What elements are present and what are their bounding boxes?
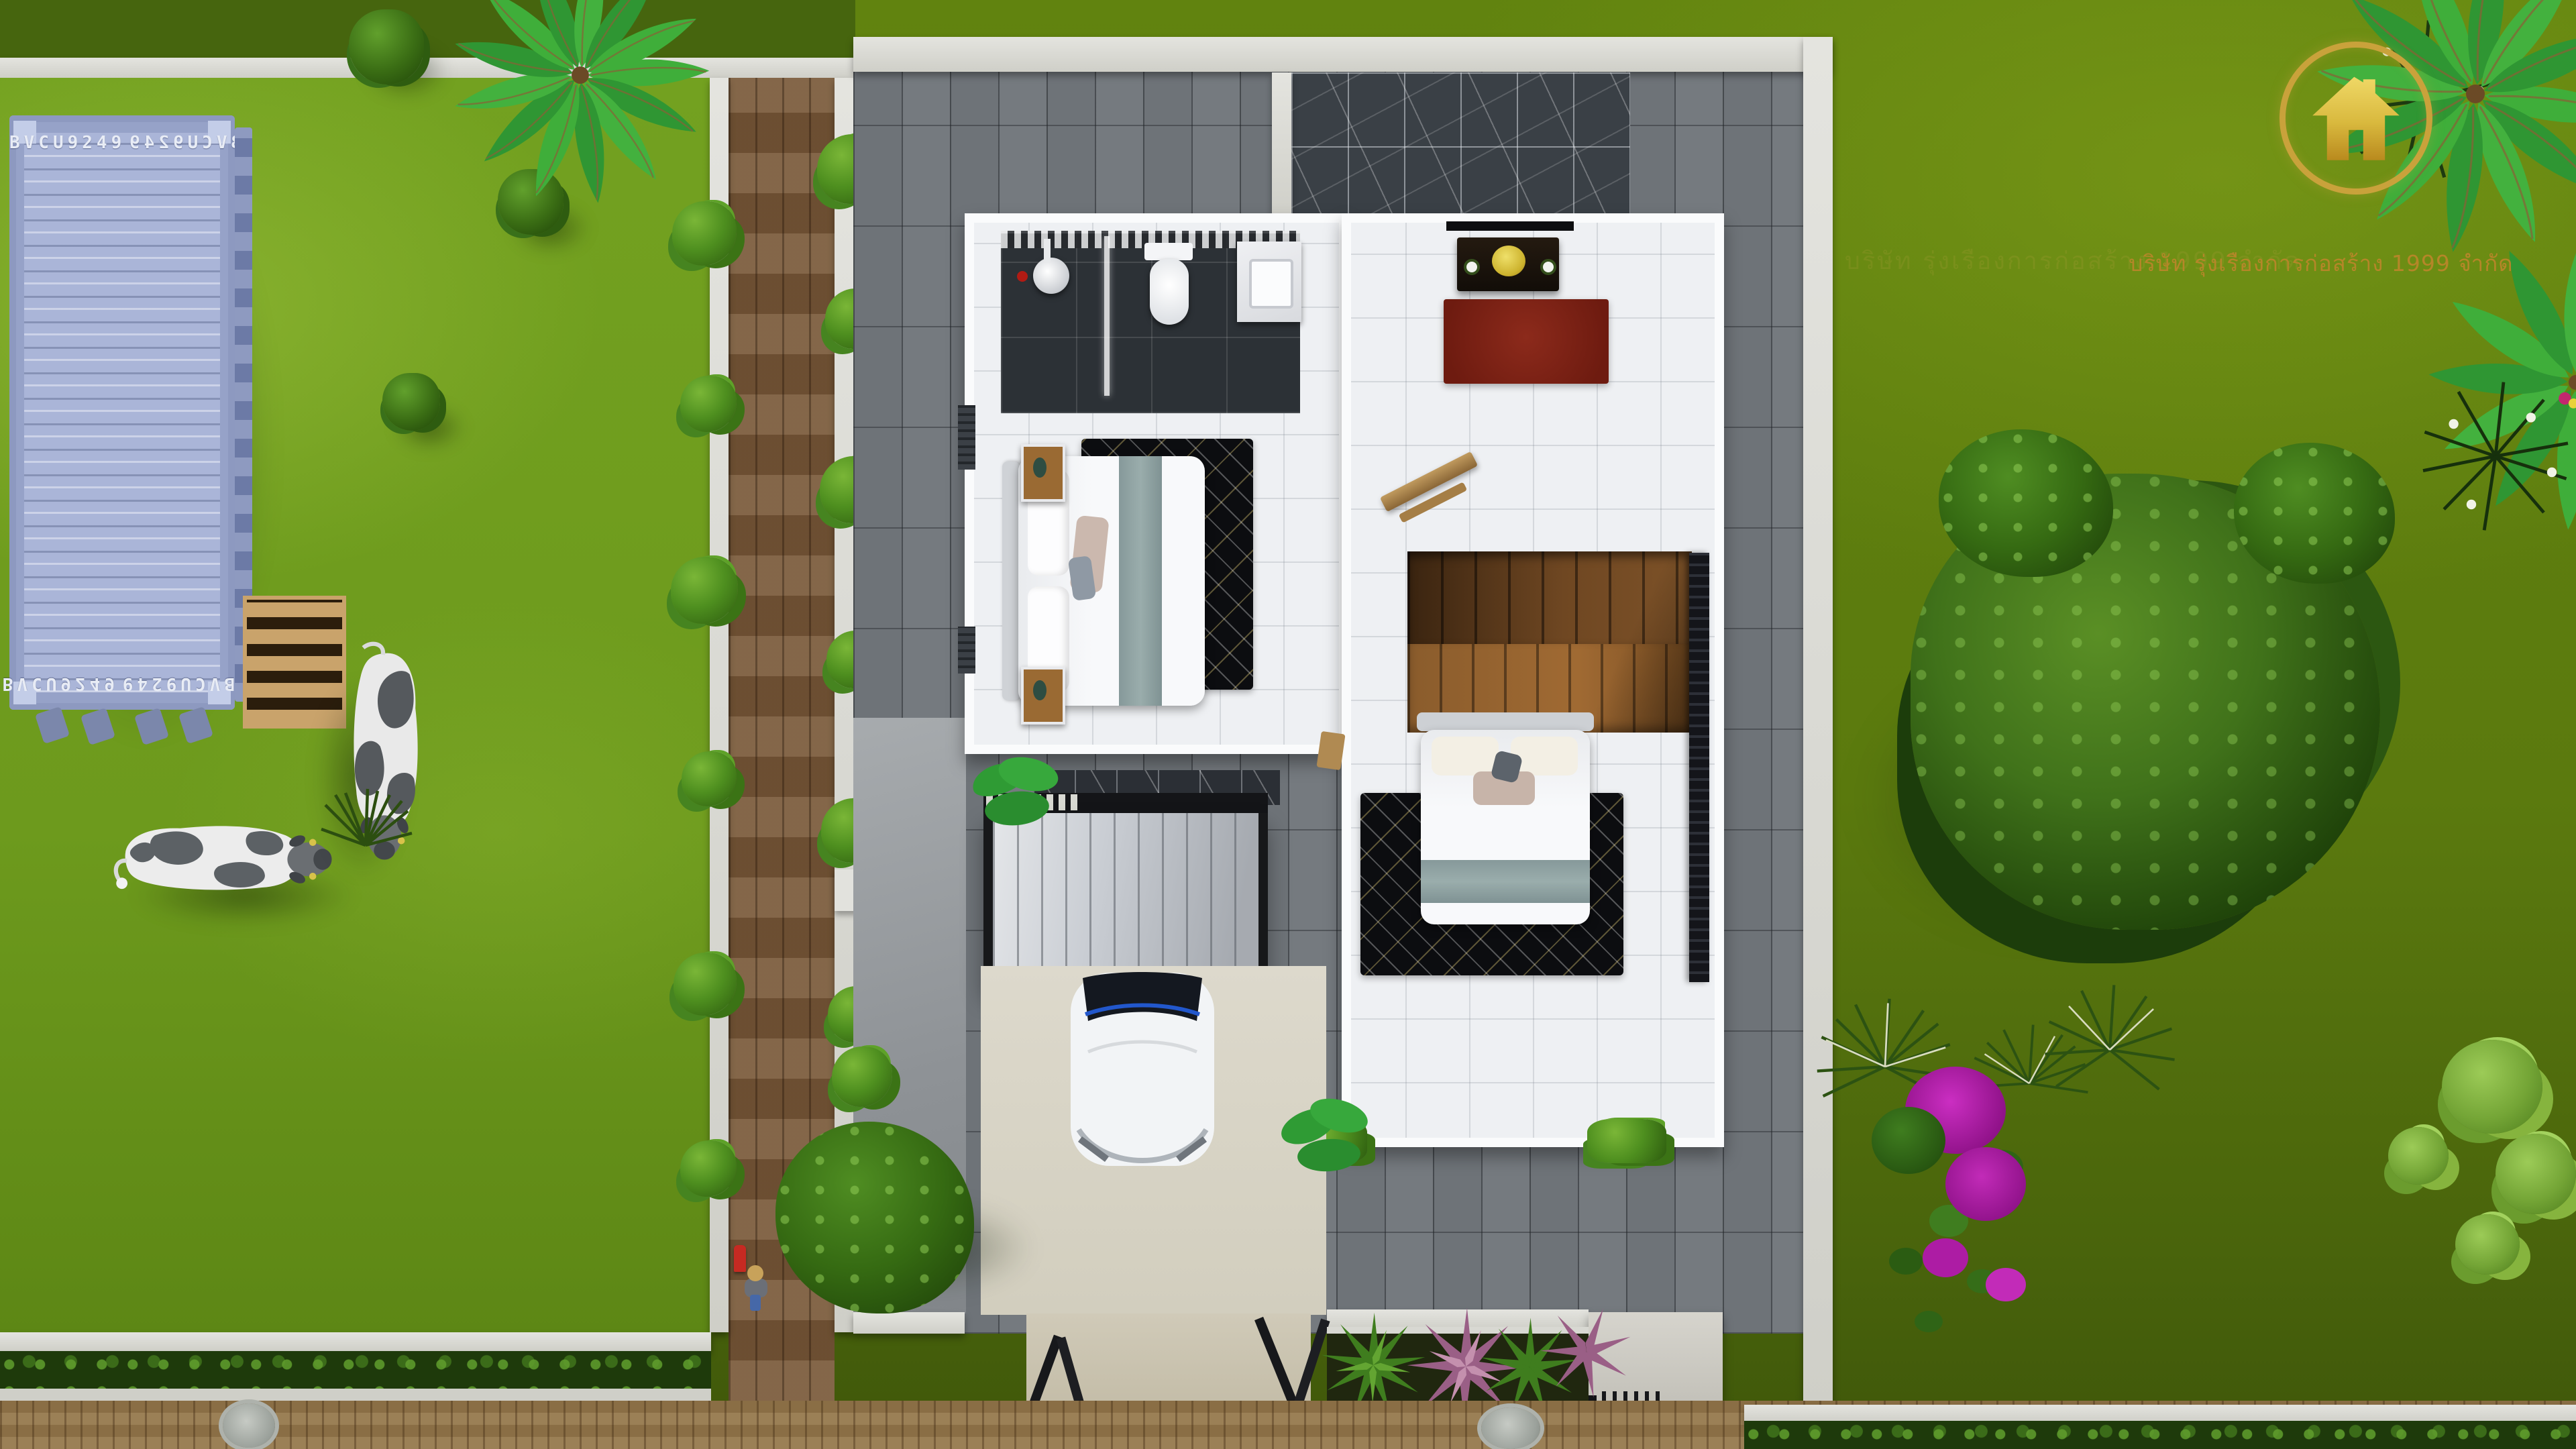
hedge-row-left [0,1351,711,1389]
container-code-top: BVCU9249 BVCU9249 [9,133,235,153]
bed2-runner [1421,860,1590,903]
tv-wall-strip [1446,221,1574,231]
bed2-pillow [1511,737,1578,775]
container-code-mirrored: BVCU9249 [125,133,241,153]
toilet [1150,259,1189,325]
shower-valve-red [1017,271,1028,282]
shower-arm [1044,239,1051,262]
spiky-plant-purple [1536,1301,1637,1402]
balcony-planter [1587,1119,1666,1163]
vanity-sink [1249,259,1293,309]
manhole-cover [1481,1407,1540,1449]
terrace-parapet [1272,72,1291,223]
stair-winder-shade [1597,551,1692,733]
south-boundary-wall-right [1744,1405,2576,1422]
aerial-render-scene: BVCU9249 BVCU9249 BVCU9249 BVCU9249 [0,0,2576,1449]
hedge-row-right [1744,1421,2576,1449]
cow-grazing [113,817,338,902]
console-flower [1466,262,1477,272]
white-car [1065,971,1220,1170]
container-roof [24,133,220,692]
manhole-cover [223,1403,275,1448]
company-logo [2279,42,2432,195]
bed1-runner [1119,456,1162,706]
banana-palm [439,0,721,216]
small-tree [349,9,424,85]
nightstand-lamp [1033,458,1046,478]
shower-head [1033,258,1069,294]
bed2-pillow [1432,737,1499,775]
bedroom2-headboard [1417,712,1594,731]
house-icon [2296,56,2416,177]
small-tree [382,373,440,431]
ac-unit [958,405,975,470]
marble-terrace [1291,72,1630,221]
container-code-mirrored: BVCU9249 [3,674,119,694]
nightstand-lamp [1033,680,1046,700]
shower-glass-panel [1104,236,1110,396]
toilet-tank [1144,243,1193,260]
monstera-leaves [1280,1100,1381,1187]
container-code: BVCU9249 [119,674,235,694]
south-boundary-wall-left [0,1332,711,1351]
container-code-bottom: BVCU9249 BVCU9249 [9,674,235,694]
bedroom1-headboard [1002,462,1020,700]
light-shrubs [2442,1040,2542,1134]
light-shrubs [2495,1134,2576,1214]
monstera-leaves [971,758,1072,839]
grass-tuft [315,785,416,885]
company-name-text: บริษัท รุ่งเรืองการก่อสร้าง 1999 จำกัด [2066,246,2576,281]
red-rug [1444,299,1609,384]
light-shrubs [2455,1214,2520,1275]
shipping-container: BVCU9249 BVCU9249 BVCU9249 BVCU9249 [9,115,235,710]
wood-stool [1316,731,1345,770]
carport-roof [983,813,1268,985]
plot-north-wall [853,37,1831,72]
plot-east-wall [1803,37,1833,1411]
plot-south-wall-west [853,1312,965,1334]
bougainvillea-bush [1865,1067,2080,1348]
wardrobe-strip [1689,553,1709,982]
container-code: BVCU9249 [9,133,125,153]
light-shrubs [2388,1127,2449,1185]
curb-left [0,1389,711,1402]
needle-plant-flowering [2415,376,2576,537]
ac-unit [958,627,975,674]
console-flower [1543,262,1554,272]
gold-bowl [1492,246,1525,276]
person-walking [741,1264,770,1311]
